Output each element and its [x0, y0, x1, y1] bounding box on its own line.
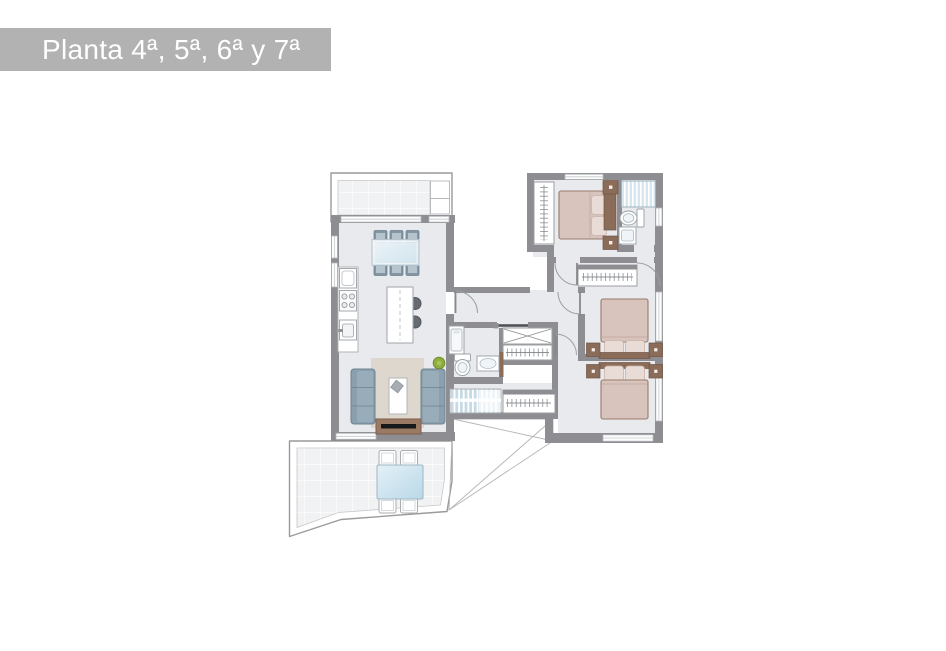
wardrobe-hallway	[578, 265, 637, 286]
sofa-right	[421, 369, 445, 424]
washbasin	[477, 356, 499, 371]
floor-plan-page: Planta 4ª, 5ª, 6ª y 7ª	[0, 0, 946, 651]
double-bed-bedroom-1	[559, 181, 618, 250]
floor-plan-drawing	[0, 0, 946, 651]
headboard	[599, 353, 650, 359]
kitchen-island	[387, 287, 413, 343]
kitchen-sink	[339, 320, 357, 340]
wardrobe-bedroom-1	[534, 182, 554, 244]
shower	[622, 181, 656, 207]
sofa-left	[351, 369, 375, 424]
terrace-bottom	[290, 441, 453, 537]
closet-hanging	[503, 345, 552, 360]
fridge	[340, 269, 357, 289]
lounge	[351, 357, 445, 434]
terrace-table	[377, 465, 423, 499]
washbasin	[619, 227, 636, 244]
balcony-storage-box	[431, 181, 450, 199]
balcony-top	[331, 173, 452, 222]
plant-icon	[433, 357, 445, 369]
balcony-storage-box	[431, 199, 450, 215]
dining-table	[372, 240, 419, 266]
door-leaf-bathroom	[500, 352, 504, 377]
lightwell-void	[449, 419, 553, 510]
dining-set	[372, 231, 419, 276]
stairs	[450, 389, 501, 413]
tv-cabinet	[376, 419, 421, 434]
toilet	[455, 354, 471, 376]
cooktop	[340, 291, 357, 312]
closet-lower	[503, 390, 555, 413]
coffee-table	[389, 378, 407, 414]
tv	[381, 424, 416, 429]
closet-crossed	[503, 328, 552, 344]
headboard	[604, 192, 616, 230]
shower-column	[449, 326, 464, 354]
